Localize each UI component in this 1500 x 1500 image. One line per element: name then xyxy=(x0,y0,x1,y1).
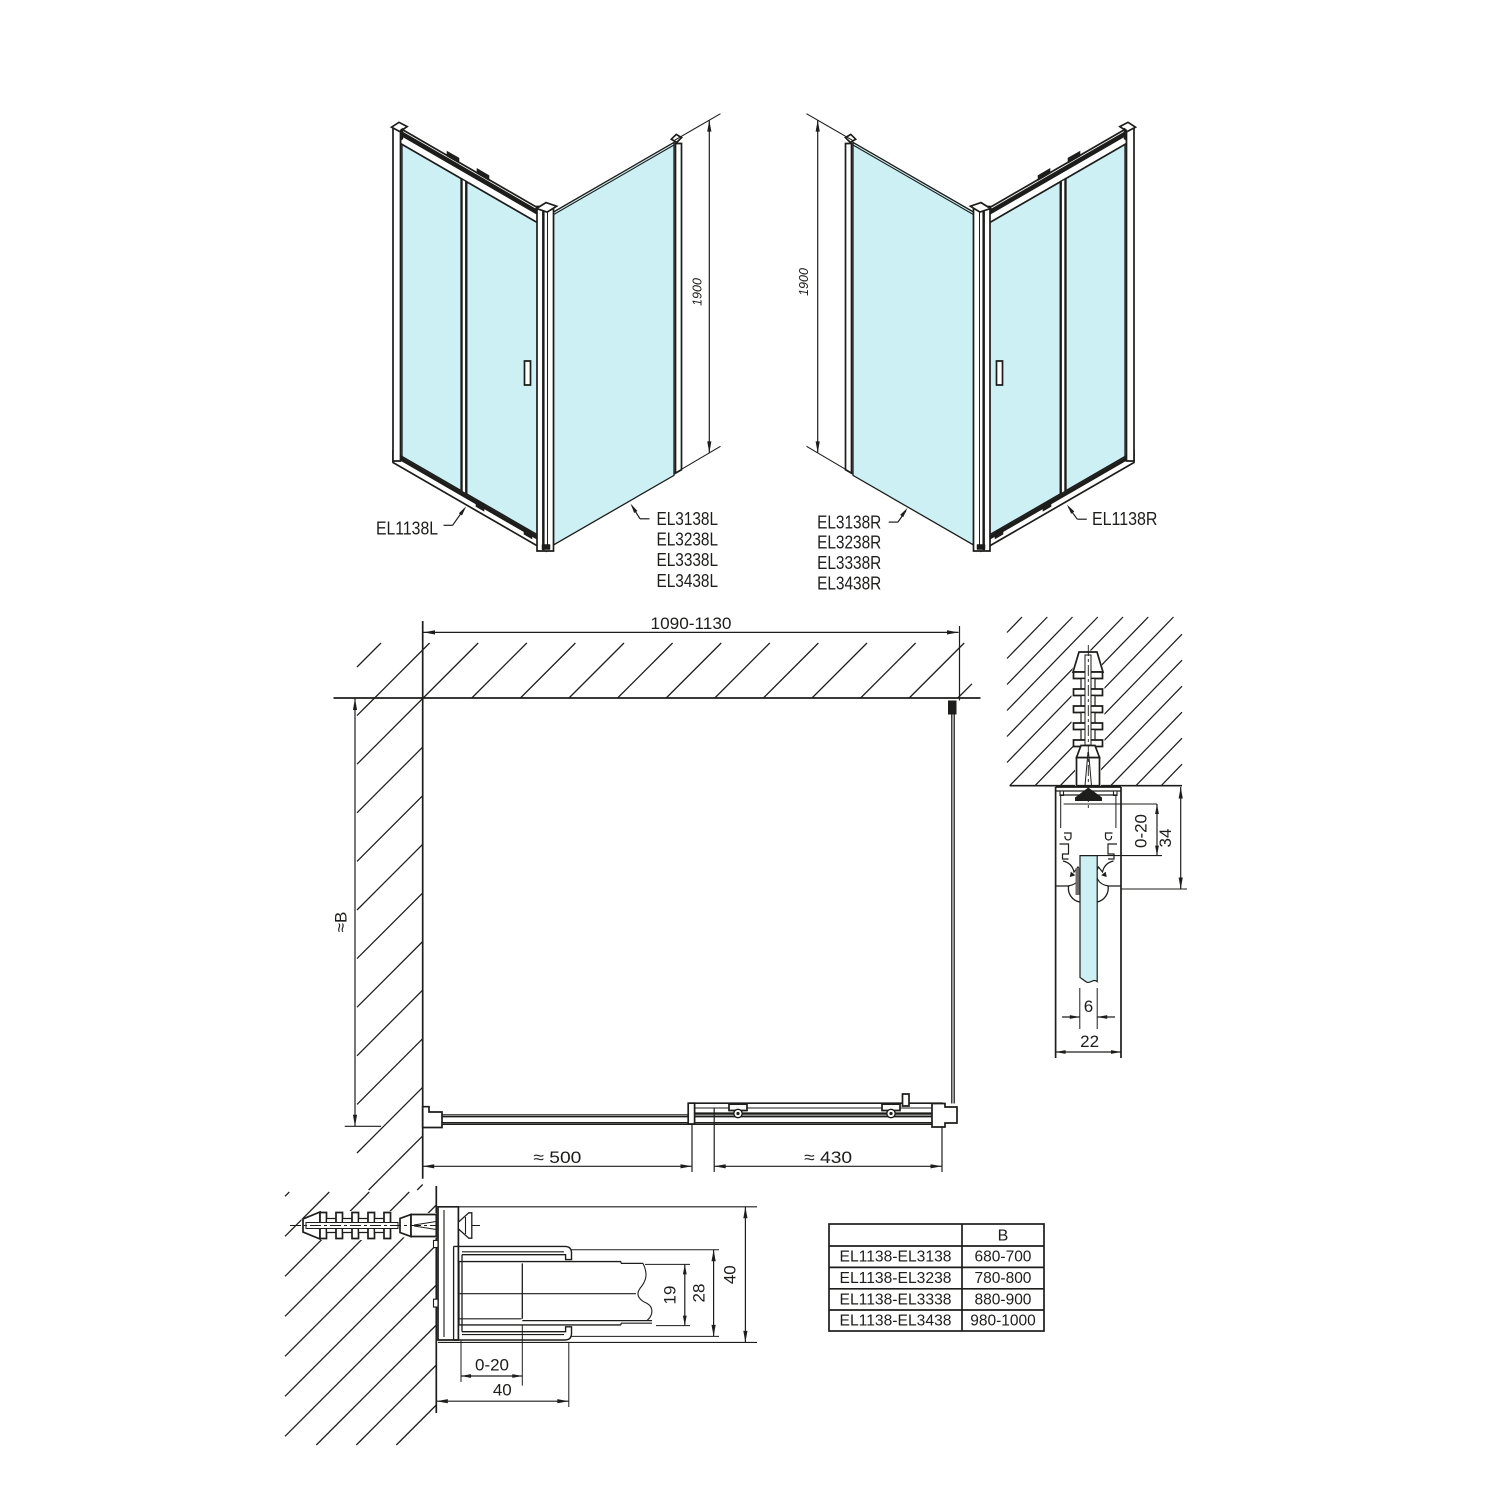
svg-text:0-20: 0-20 xyxy=(475,1356,509,1375)
svg-text:EL3238L: EL3238L xyxy=(657,529,719,550)
svg-text:EL1138-EL3238: EL1138-EL3238 xyxy=(840,1270,952,1287)
svg-text:19: 19 xyxy=(661,1286,680,1305)
svg-text:22: 22 xyxy=(1080,1032,1099,1051)
svg-text:≈ 430: ≈ 430 xyxy=(804,1148,852,1167)
svg-text:EL3338L: EL3338L xyxy=(657,549,719,570)
svg-text:EL1138-EL3438: EL1138-EL3438 xyxy=(840,1313,952,1330)
svg-text:40: 40 xyxy=(493,1381,512,1400)
svg-text:EL3338R: EL3338R xyxy=(817,552,881,573)
svg-text:B: B xyxy=(998,1228,1009,1245)
svg-text:EL1138-EL3138: EL1138-EL3138 xyxy=(840,1249,952,1266)
svg-text:28: 28 xyxy=(690,1284,709,1303)
svg-text:≈ 500: ≈ 500 xyxy=(533,1148,581,1167)
svg-text:34: 34 xyxy=(1156,829,1175,848)
svg-text:880-900: 880-900 xyxy=(975,1291,1032,1308)
svg-text:1900: 1900 xyxy=(797,268,811,296)
svg-text:EL3138L: EL3138L xyxy=(657,508,719,529)
svg-text:1090-1130: 1090-1130 xyxy=(651,614,732,633)
svg-text:680-700: 680-700 xyxy=(975,1249,1032,1266)
svg-text:EL1138-EL3338: EL1138-EL3338 xyxy=(840,1291,952,1308)
svg-text:1900: 1900 xyxy=(691,278,705,306)
svg-text:980-1000: 980-1000 xyxy=(970,1313,1036,1330)
svg-text:EL1138R: EL1138R xyxy=(1092,508,1157,529)
svg-text:EL3238R: EL3238R xyxy=(817,532,881,553)
svg-text:EL3438L: EL3438L xyxy=(657,570,719,591)
svg-text:780-800: 780-800 xyxy=(975,1270,1032,1287)
svg-text:6: 6 xyxy=(1084,997,1093,1016)
svg-text:EL1138L: EL1138L xyxy=(376,517,438,538)
svg-text:40: 40 xyxy=(721,1265,740,1284)
svg-text:≈B: ≈B xyxy=(332,912,351,933)
svg-text:0-20: 0-20 xyxy=(1132,814,1151,848)
svg-text:EL3138R: EL3138R xyxy=(817,511,881,532)
svg-text:EL3438R: EL3438R xyxy=(817,573,881,594)
